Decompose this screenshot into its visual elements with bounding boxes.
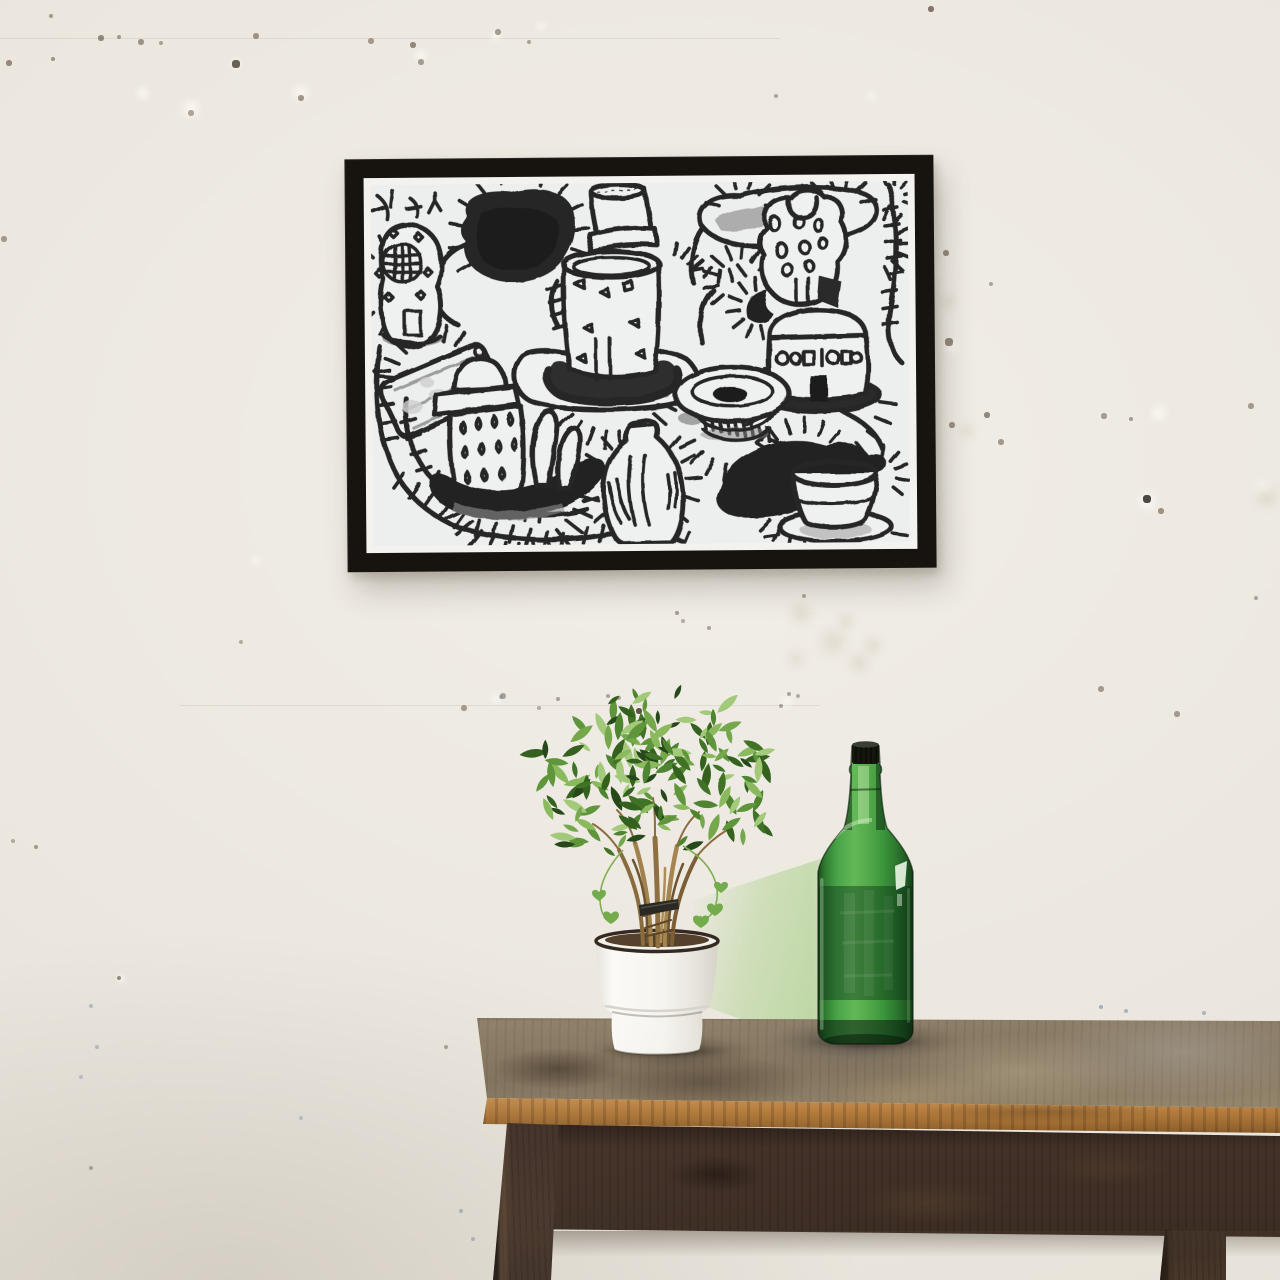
room-scene [0, 0, 1280, 1280]
drawing-striped-cap [589, 184, 658, 252]
enamel-pot [596, 931, 718, 1055]
table-apron [497, 1123, 1280, 1237]
green-glass-bottle [800, 738, 925, 1053]
drawing-jug [603, 421, 684, 545]
artwork-drawing [371, 181, 911, 546]
frame-mat [364, 174, 918, 553]
plaster-seam [0, 38, 780, 39]
plant-foliage [519, 684, 776, 858]
table-shadow-on-wall [515, 1231, 1280, 1257]
bottle-glass [810, 741, 920, 1050]
drawing-cup-swoosh [716, 440, 891, 542]
potted-ficus-plant [515, 678, 795, 1070]
picture-frame [344, 155, 936, 573]
wall-paint-flecks [0, 0, 2, 2]
drawing-helmet-vessel [373, 191, 443, 348]
bottle-cap [852, 741, 879, 764]
drawing-dark-blob [460, 188, 575, 282]
